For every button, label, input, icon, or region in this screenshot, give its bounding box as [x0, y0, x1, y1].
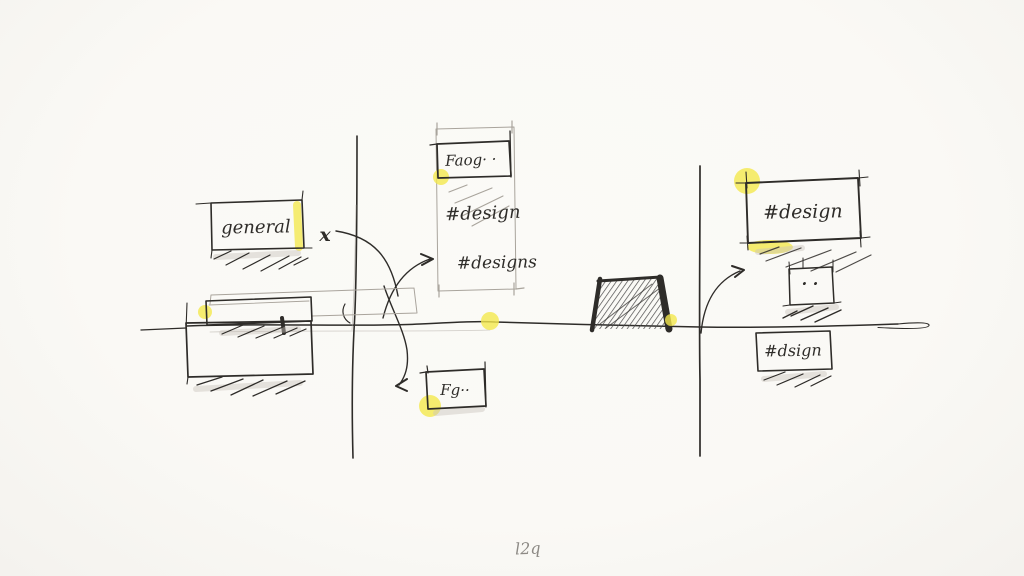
fg-box: Fg·· — [419, 362, 486, 417]
dsign-box-label: #dsign — [764, 341, 822, 361]
general-box: general — [196, 191, 312, 271]
arrow-to-general: x — [318, 224, 398, 296]
x-arrowhead-mark: x — [318, 224, 331, 246]
arrow-to-design-box — [701, 266, 744, 333]
channel-panel: Faog· · #design #designs — [430, 121, 537, 297]
page-caption: l2q — [515, 539, 541, 559]
fg-box-label: Fg·· — [439, 381, 470, 399]
dots-box: · · — [783, 258, 841, 322]
design-box: #design — [734, 168, 871, 272]
baseline-end-loop — [878, 323, 929, 329]
wireframe-sketch: general x Faog· · #design #designs Fg·· — [0, 0, 1024, 576]
design-box-label: #design — [763, 200, 843, 223]
stacked-boxes — [186, 288, 417, 396]
dark-block-highlight-dot — [665, 314, 677, 326]
baseline-left-stub — [141, 328, 186, 330]
fg-box-shadow — [436, 409, 482, 413]
general-box-shadow — [216, 253, 298, 257]
left-divider-hook — [343, 304, 350, 323]
stacked-thin-box-echo — [209, 301, 309, 305]
baseline-highlight-dot — [481, 312, 499, 330]
general-box-highlight-edge — [297, 205, 299, 247]
dots-box-label: · · — [802, 274, 819, 293]
channel-design-label: #design — [445, 202, 521, 226]
sketch-canvas: general x Faog· · #design #designs Fg·· — [0, 0, 1024, 576]
feed-box-label: Faog· · — [444, 150, 497, 170]
arrow-to-channel-panel — [383, 254, 433, 318]
arrow-to-fg-box-curve — [384, 286, 408, 385]
dsign-box: #dsign — [756, 331, 832, 387]
stacked-big-box-shadow — [196, 383, 300, 389]
arrow-to-general-curve — [336, 231, 398, 296]
left-divider-line — [352, 136, 357, 458]
dark-block-fill — [594, 277, 668, 329]
stacked-highlight-dot — [198, 305, 212, 319]
arrow-to-design-box-curve — [701, 271, 740, 333]
channel-designs-label: #designs — [457, 252, 538, 273]
dark-block — [592, 277, 677, 330]
general-box-label: general — [221, 216, 291, 238]
